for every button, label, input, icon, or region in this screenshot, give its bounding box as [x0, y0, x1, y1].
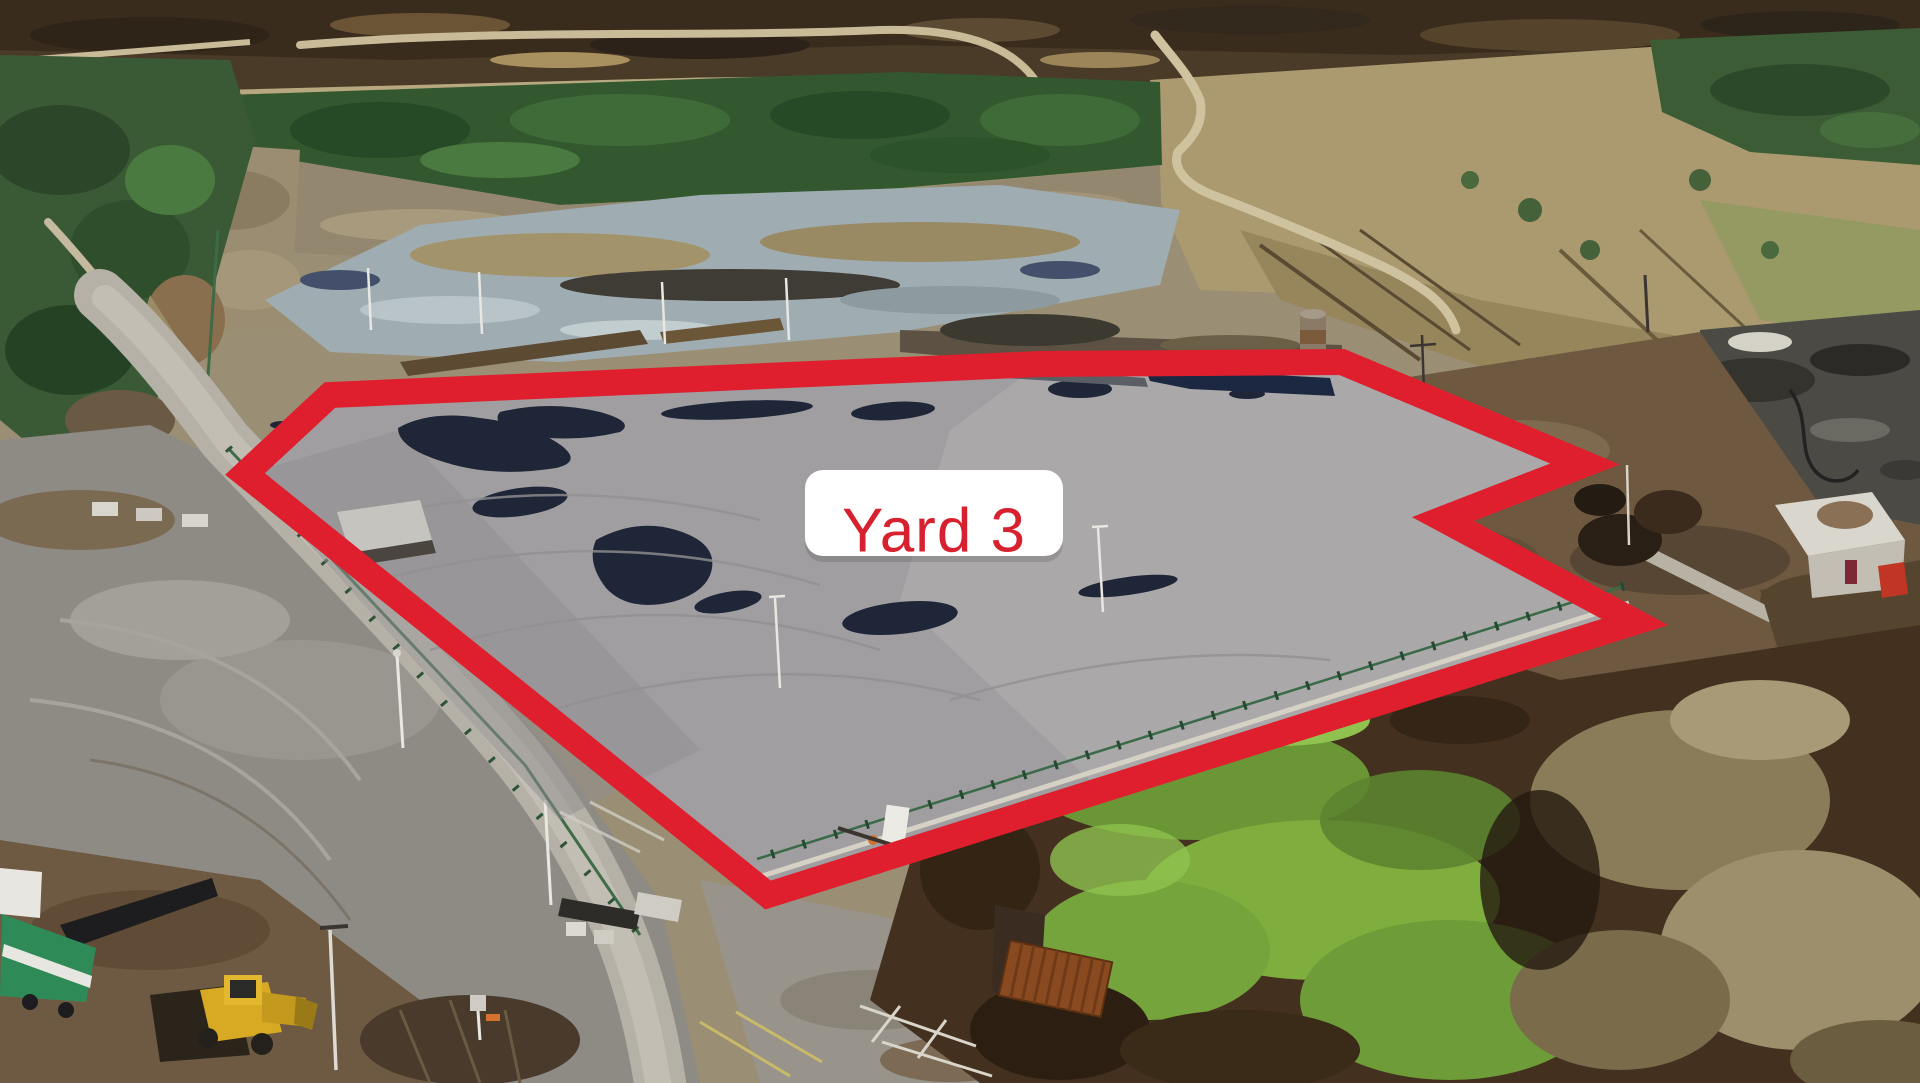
- yard-label-text: Yard 3: [842, 496, 1026, 565]
- screenshot: Yard 3: [0, 0, 1920, 1083]
- shed-door: [1845, 560, 1857, 584]
- red-object: [1878, 562, 1908, 598]
